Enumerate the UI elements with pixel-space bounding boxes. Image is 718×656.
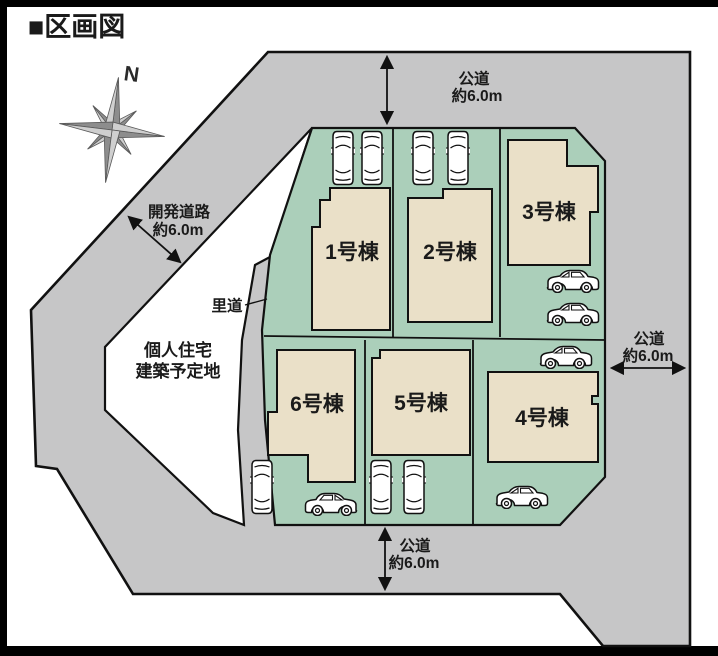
compass-rose — [53, 71, 171, 189]
car-icon — [359, 132, 384, 185]
village-road-label: 里道 — [211, 296, 243, 315]
car-icon — [410, 132, 435, 185]
building-label-6: 6号棟 — [290, 392, 345, 416]
building-label-1: 1号棟 — [325, 240, 380, 264]
top-road-width-label: 約6.0m — [452, 86, 503, 105]
car-icon — [368, 461, 393, 514]
car-icon — [330, 132, 355, 185]
frame-left — [0, 0, 7, 656]
plot-map: ■区画図 1号棟 2号棟 3号棟 4号棟 5号棟 6号棟 公道 約6.0m 公道… — [0, 0, 718, 656]
page-title: ■区画図 — [28, 12, 125, 42]
bottom-road-name-label: 公道 — [399, 536, 431, 555]
frame-top — [0, 0, 718, 7]
top-road-name-label: 公道 — [458, 69, 490, 88]
frame-bottom — [0, 646, 718, 656]
building-label-3: 3号棟 — [522, 200, 577, 224]
bottom-road-width-label: 約6.0m — [389, 553, 440, 572]
compass-north-label: N — [122, 62, 140, 87]
development-road-width-label: 約6.0m — [153, 220, 204, 239]
car-icon — [249, 461, 274, 514]
car-icon — [401, 461, 426, 514]
right-road-name-label: 公道 — [633, 329, 665, 348]
private-site-label-line1: 個人住宅 — [143, 340, 212, 360]
plot-map-page: ■区画図 1号棟 2号棟 3号棟 4号棟 5号棟 6号棟 公道 約6.0m 公道… — [0, 0, 718, 656]
building-label-4: 4号棟 — [515, 406, 570, 430]
car-icon — [445, 132, 470, 185]
development-road-name-label: 開発道路 — [148, 202, 211, 221]
private-site-label-line2: 建築予定地 — [136, 361, 221, 381]
right-road-width-label: 約6.0m — [623, 346, 674, 365]
building-label-2: 2号棟 — [423, 240, 478, 264]
building-label-5: 5号棟 — [394, 391, 449, 415]
